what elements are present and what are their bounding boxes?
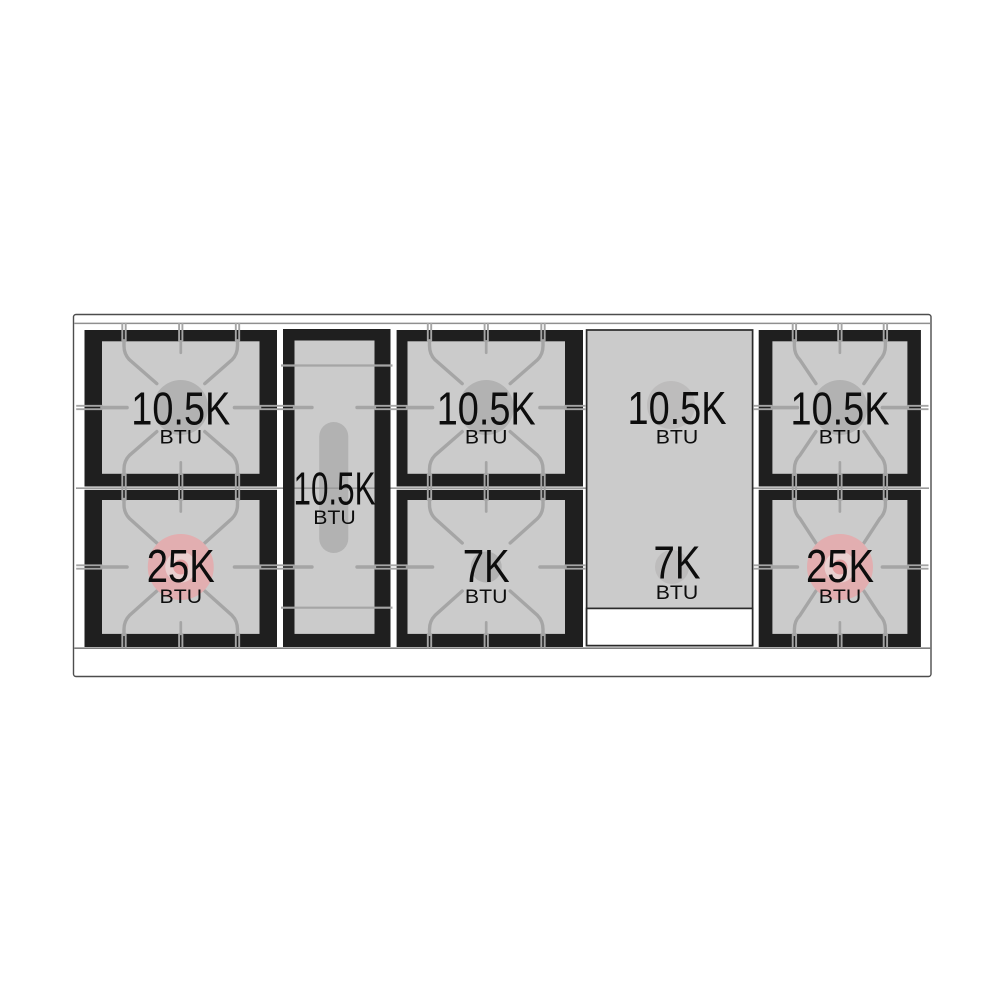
svg-text:25K: 25K bbox=[806, 540, 874, 592]
svg-text:BTU: BTU bbox=[160, 587, 203, 608]
svg-text:10.5K: 10.5K bbox=[628, 382, 727, 434]
svg-text:10.5K: 10.5K bbox=[294, 463, 376, 515]
svg-text:BTU: BTU bbox=[313, 508, 356, 529]
svg-text:BTU: BTU bbox=[465, 587, 508, 608]
svg-text:BTU: BTU bbox=[465, 428, 508, 449]
svg-text:BTU: BTU bbox=[656, 428, 699, 449]
svg-text:7K: 7K bbox=[463, 540, 510, 592]
svg-text:BTU: BTU bbox=[819, 587, 862, 608]
svg-text:7K: 7K bbox=[654, 537, 701, 589]
svg-text:BTU: BTU bbox=[819, 428, 862, 449]
svg-text:BTU: BTU bbox=[656, 583, 699, 604]
svg-text:25K: 25K bbox=[147, 540, 215, 592]
svg-text:BTU: BTU bbox=[160, 428, 203, 449]
